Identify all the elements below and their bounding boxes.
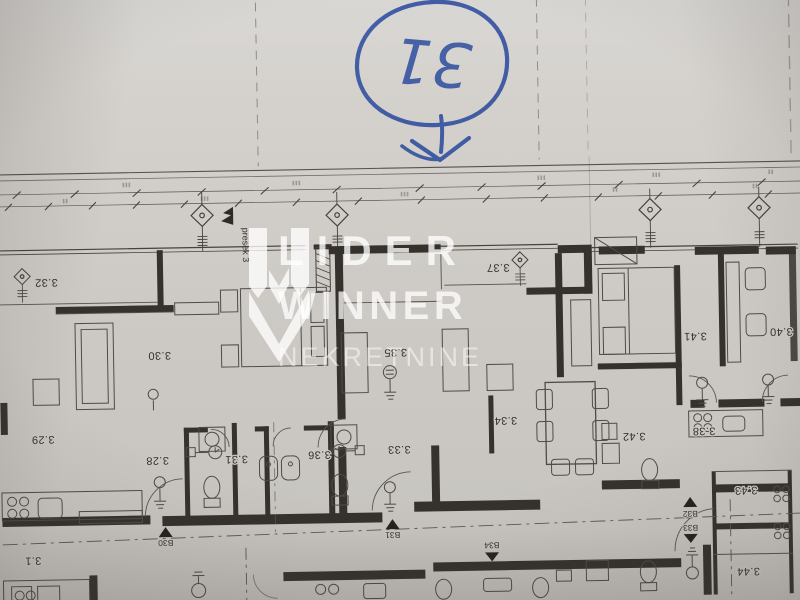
floorplan-photo: presek 3 xyxy=(0,0,800,600)
circled-number: 31 xyxy=(390,23,475,103)
handwritten-annotation: 31 xyxy=(0,0,800,600)
